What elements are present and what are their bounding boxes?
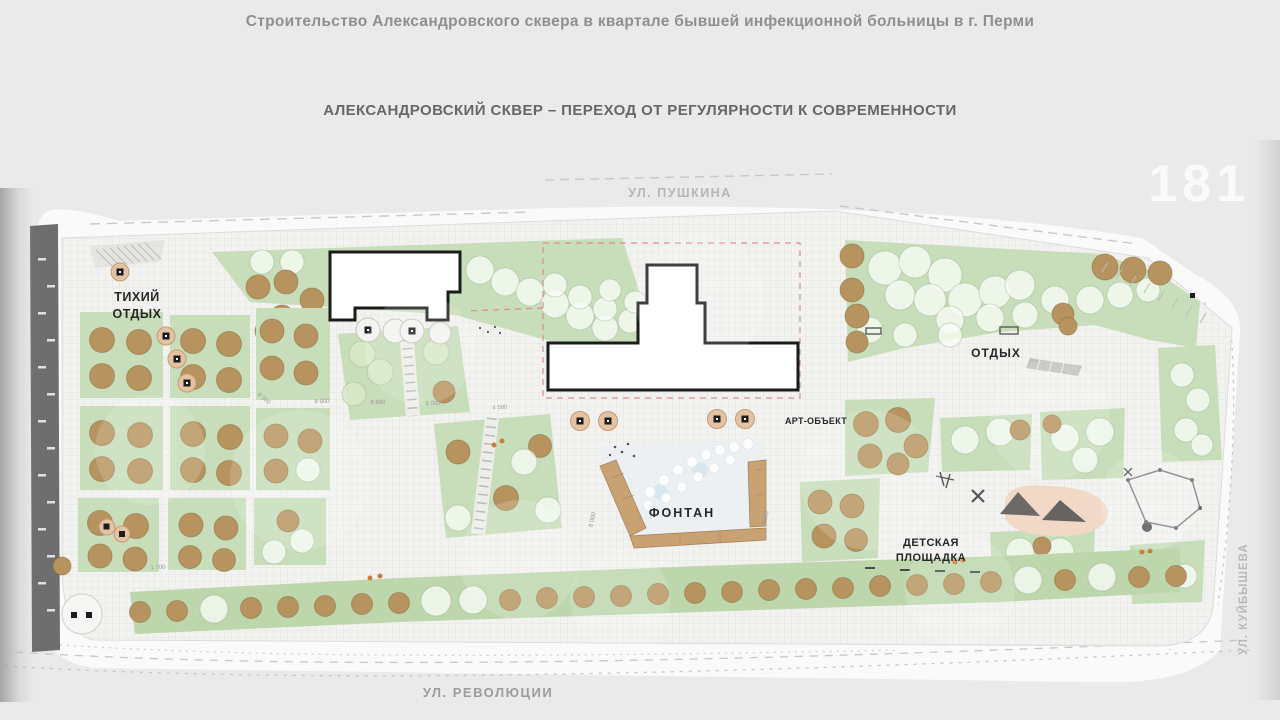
label-fountain: ФОНТАН (649, 506, 715, 520)
svg-text:1 700: 1 700 (150, 565, 166, 572)
svg-text:9 000: 9 000 (425, 401, 441, 407)
label-playground-1: ДЕТСКАЯ (903, 537, 959, 549)
road-left (30, 224, 60, 652)
svg-text:9 900: 9 900 (370, 400, 386, 406)
label-quiet-rest-2: ОТДЫХ (112, 307, 161, 321)
label-playground-2: ПЛОЩАДКА (896, 552, 966, 564)
page-edge-left (0, 188, 34, 702)
label-art-object: АРТ-ОБЪЕКТ (785, 416, 847, 426)
site-plan-drawing: ТИХИЙ ОТДЫХ ОТДЫХ АРТ-ОБЪЕКТ ФОНТАН ДЕТС… (0, 0, 1280, 720)
street-label-kuybysheva: УЛ. КУЙБЫШЕВА (1238, 543, 1250, 655)
svg-text:4 500: 4 500 (492, 405, 508, 412)
slide-canvas: Строительство Александровского сквера в … (0, 0, 1280, 720)
svg-text:8 900: 8 900 (314, 399, 330, 405)
page-edge-right (1254, 140, 1280, 700)
label-rest: ОТДЫХ (971, 346, 1021, 360)
label-quiet-rest-1: ТИХИЙ (114, 289, 159, 304)
lawn-right-edge (1158, 345, 1222, 462)
